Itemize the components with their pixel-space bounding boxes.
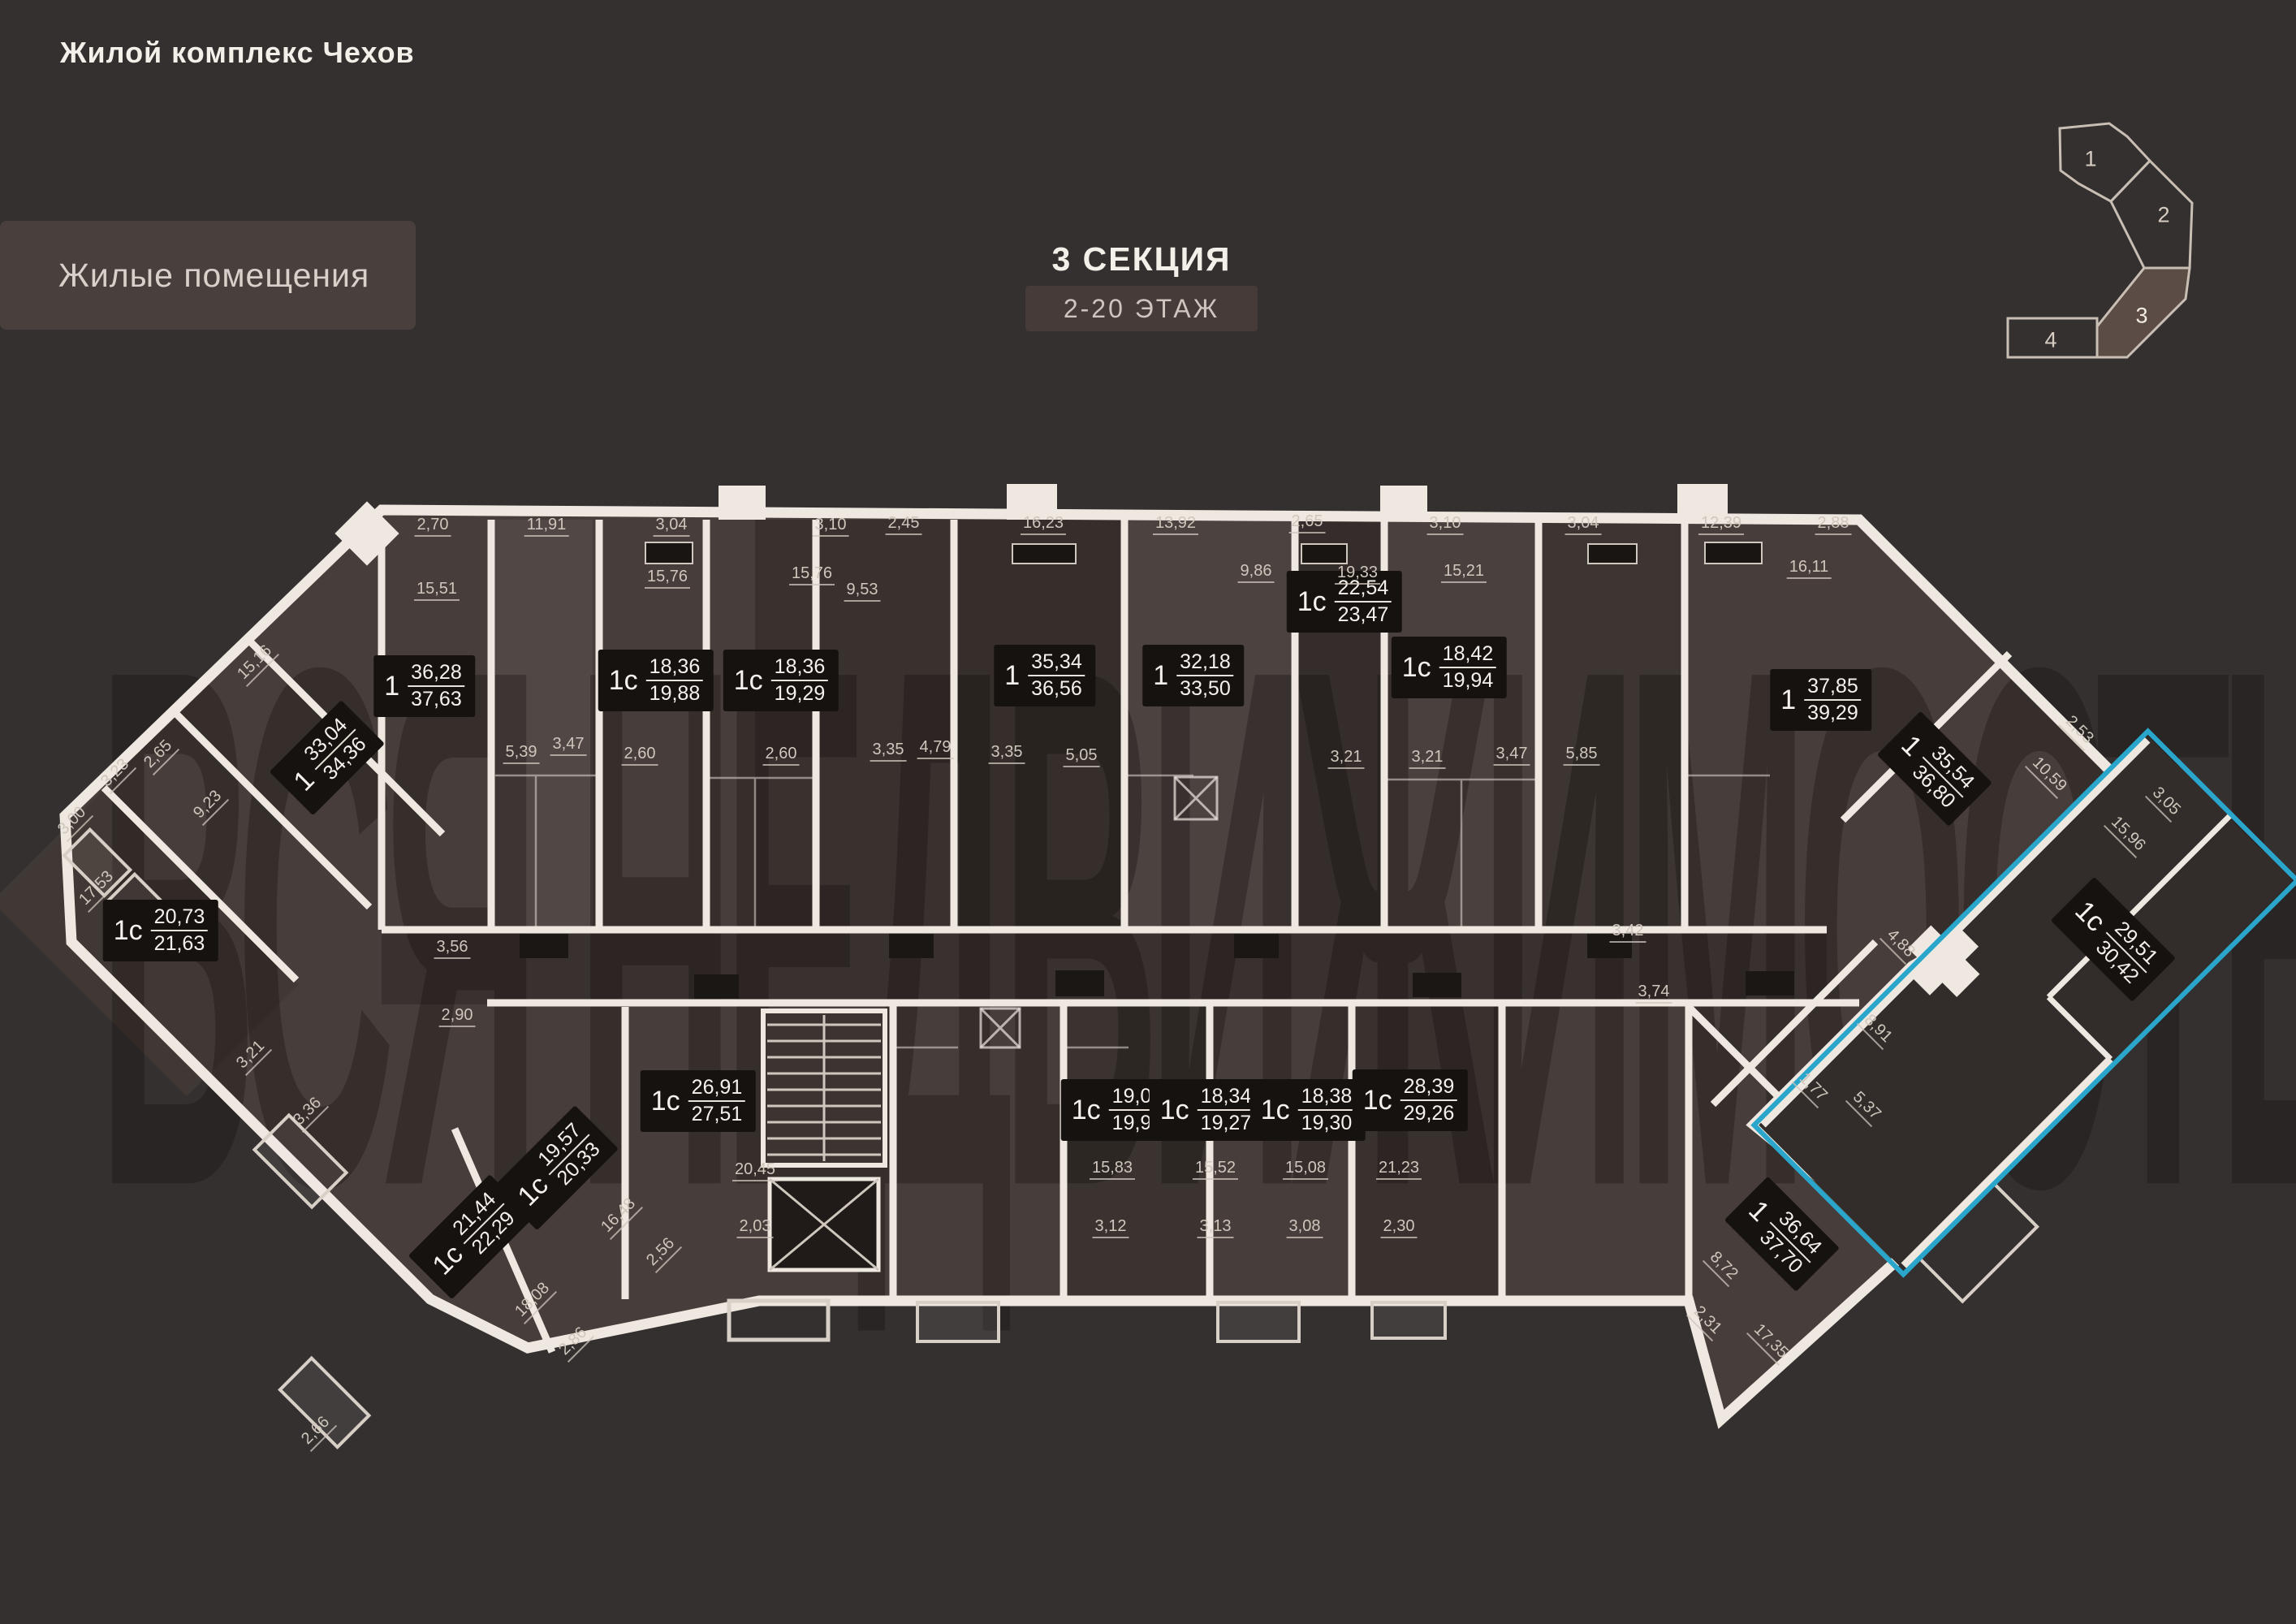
dimension-label: 8,72 — [1703, 1246, 1743, 1287]
apartment-label[interactable]: 1с18,3619,29 — [723, 650, 839, 711]
minimap-section-number[interactable]: 2 — [2157, 203, 2169, 228]
apartment-label[interactable]: 137,8539,29 — [1770, 669, 1871, 731]
apartment-living-area: 18,36 — [646, 656, 704, 681]
dimension-label: 16,11 — [1787, 558, 1832, 579]
apartment-living-area: 26,91 — [688, 1077, 746, 1102]
dimension-label: 5,85 — [1564, 745, 1600, 766]
apartment-label[interactable]: 132,1833,50 — [1142, 645, 1244, 706]
dimension-label: 2,53 — [2058, 710, 2099, 751]
dimension-label: 3,36 — [288, 1092, 329, 1133]
apartment-type: 1 — [384, 672, 399, 700]
dimension-label: 11,91 — [524, 516, 569, 537]
dimension-label: 15,96 — [2104, 811, 2151, 858]
dimension-label: 2,88 — [1815, 514, 1852, 535]
apartment-label[interactable]: 1с18,3419,27 — [1150, 1079, 1265, 1141]
dimension-label: 3,04 — [654, 516, 690, 537]
apartment-total-area: 19,94 — [1439, 668, 1497, 692]
apartment-type: 1с — [428, 1240, 468, 1280]
dimension-label: 4,79 — [917, 738, 954, 759]
dimension-label: 2,03 — [737, 1217, 774, 1238]
apartment-total-area: 19,29 — [771, 681, 829, 705]
minimap-section-number[interactable]: 3 — [2135, 304, 2147, 329]
apartment-total-area: 19,27 — [1198, 1111, 1255, 1134]
dimension-label: 2,60 — [622, 745, 658, 766]
plan-overlay: 136,2837,63133,0434,361с18,3619,881с18,3… — [0, 0, 2296, 1624]
dimension-label: 3,10 — [1427, 514, 1464, 535]
apartment-living-area: 28,39 — [1400, 1076, 1458, 1101]
apartment-total-area: 19,88 — [646, 681, 704, 705]
apartment-type: 1с — [114, 917, 143, 944]
apartment-living-area: 37,85 — [1804, 676, 1862, 701]
dimension-label: 3,05 — [2145, 782, 2186, 823]
dimension-label: 15,21 — [1441, 562, 1487, 583]
dimension-label: 3,21 — [1409, 748, 1446, 769]
dimension-label: 15,16 — [232, 640, 279, 687]
dimension-label: 15,51 — [414, 580, 460, 601]
apartment-living-area: 18,38 — [1298, 1086, 1356, 1111]
dimension-label: 3,13 — [1198, 1217, 1234, 1238]
apartment-total-area: 21,63 — [151, 931, 209, 955]
apartment-type: 1с — [2070, 896, 2110, 936]
dimension-label: 3,35 — [989, 743, 1025, 764]
dimension-label: 3,35 — [870, 741, 907, 762]
apartment-label[interactable]: 1с20,7321,63 — [103, 900, 218, 961]
apartment-label[interactable]: 1с18,3619,88 — [598, 650, 714, 711]
apartment-type: 1с — [609, 667, 638, 694]
dimension-label: 9,86 — [1238, 562, 1275, 583]
apartment-label[interactable]: 135,3436,56 — [994, 645, 1095, 706]
dimension-label: 3,56 — [434, 938, 471, 959]
dimension-label: 2,70 — [415, 516, 451, 537]
dimension-label: 3,74 — [1636, 983, 1672, 1004]
minimap-section-number[interactable]: 4 — [2044, 328, 2056, 353]
apartment-label[interactable]: 1с26,9127,51 — [641, 1070, 756, 1132]
apartment-type: 1с — [1072, 1096, 1101, 1124]
dimension-label: 2,66 — [296, 1411, 337, 1452]
page-background: { "header": { "title": "Жилой комплекс Ч… — [0, 0, 2296, 1624]
dimension-label: 17,35 — [1746, 1319, 1793, 1366]
dimension-label: 3,00 — [53, 801, 93, 842]
dimension-label: 3,12 — [1093, 1217, 1129, 1238]
apartment-label[interactable]: 135,5436,80 — [1877, 711, 1992, 827]
apartment-type: 1с — [1261, 1096, 1290, 1124]
apartment-type: 1с — [1160, 1096, 1189, 1124]
dimension-label: 3,21 — [231, 1035, 272, 1076]
apartment-living-area: 18,34 — [1198, 1086, 1255, 1111]
dimension-label: 13,92 — [1153, 514, 1198, 535]
dimension-label: 3,21 — [1328, 748, 1365, 769]
dimension-label: 5,05 — [1064, 746, 1100, 767]
apartment-type: 1 — [1004, 662, 1020, 689]
dimension-label: 2,56 — [641, 1233, 682, 1273]
dimension-label: 20,45 — [732, 1160, 778, 1181]
apartment-total-area: 27,51 — [688, 1102, 746, 1125]
dimension-label: 3,47 — [550, 735, 587, 756]
apartment-total-area: 37,63 — [408, 687, 465, 710]
dimension-label: 2,65 — [139, 735, 179, 775]
dimension-label: 3,04 — [1565, 514, 1602, 535]
apartment-type: 1с — [734, 667, 763, 694]
dimension-label: 15,76 — [789, 564, 835, 585]
dimension-label: 1,77 — [1792, 1068, 1832, 1108]
dimension-label: 18,08 — [510, 1277, 557, 1324]
dimension-label: 5,39 — [503, 743, 540, 764]
apartment-living-area: 18,42 — [1439, 643, 1497, 668]
apartment-total-area: 39,29 — [1804, 701, 1862, 724]
dimension-label: 3,08 — [1287, 1217, 1323, 1238]
apartment-total-area: 33,50 — [1176, 676, 1234, 700]
dimension-label: 9,23 — [188, 785, 229, 826]
apartment-total-area: 19,30 — [1298, 1111, 1356, 1134]
dimension-label: 2,90 — [439, 1006, 476, 1027]
dimension-label: 16,23 — [1021, 514, 1066, 535]
apartment-label[interactable]: 1с28,3929,26 — [1353, 1069, 1468, 1131]
apartment-label[interactable]: 1с18,4219,94 — [1392, 637, 1507, 698]
dimension-label: 2,60 — [763, 745, 800, 766]
apartment-type: 1с — [1363, 1086, 1392, 1114]
dimension-label: 2,31 — [1686, 1301, 1727, 1341]
dimension-label: 2,45 — [886, 514, 922, 535]
dimension-label: 15,76 — [645, 568, 690, 589]
apartment-total-area: 36,56 — [1028, 676, 1085, 700]
apartment-total-area: 23,47 — [1335, 603, 1392, 626]
apartment-living-area: 36,28 — [408, 662, 465, 687]
dimension-label: 4,88 — [1880, 924, 1920, 965]
dimension-label: 21,23 — [1376, 1159, 1422, 1180]
apartment-living-area: 18,36 — [771, 656, 829, 681]
apartment-living-area: 32,18 — [1176, 651, 1234, 676]
dimension-label: 15,52 — [1193, 1159, 1238, 1180]
minimap-section-number[interactable]: 1 — [2084, 147, 2096, 172]
dimension-label: 5,37 — [1845, 1086, 1886, 1127]
dimension-label: 15,83 — [1090, 1159, 1135, 1180]
apartment-living-area: 20,73 — [151, 906, 209, 931]
dimension-label: 9,53 — [844, 581, 881, 602]
dimension-label: 8,91 — [1857, 1009, 1897, 1050]
dimension-label: 2,65 — [1289, 512, 1326, 533]
apartment-total-area: 29,26 — [1400, 1101, 1458, 1125]
dimension-label: 19,33 — [1335, 564, 1380, 585]
dimension-label: 3,42 — [1610, 922, 1646, 943]
dimension-label: 15,08 — [1283, 1159, 1328, 1180]
dimension-label: 10,59 — [2025, 752, 2072, 799]
dimension-label: 3,47 — [1494, 745, 1530, 766]
apartment-label[interactable]: 136,2837,63 — [373, 655, 475, 717]
apartment-label[interactable]: 136,6437,70 — [1724, 1177, 1840, 1292]
apartment-label[interactable]: 1с29,5130,42 — [2051, 877, 2176, 1002]
apartment-type: 1 — [1780, 686, 1796, 714]
apartment-label[interactable]: 133,0434,36 — [270, 700, 385, 815]
apartment-label[interactable]: 1с18,3819,30 — [1250, 1079, 1366, 1141]
dimension-label: 2,86 — [554, 1322, 594, 1363]
apartment-type: 1 — [1153, 662, 1168, 689]
apartment-type: 1с — [1297, 588, 1327, 615]
apartment-type: 1с — [1402, 654, 1431, 681]
apartment-type: 1 — [289, 766, 319, 796]
dimension-label: 12,39 — [1698, 514, 1744, 535]
dimension-label: 3,23 — [96, 754, 136, 794]
apartment-living-area: 35,34 — [1028, 651, 1085, 676]
dimension-label: 16,48 — [596, 1193, 643, 1240]
apartment-type: 1с — [651, 1087, 680, 1115]
dimension-label: 3,10 — [813, 516, 849, 537]
dimension-label: 2,30 — [1381, 1217, 1418, 1238]
